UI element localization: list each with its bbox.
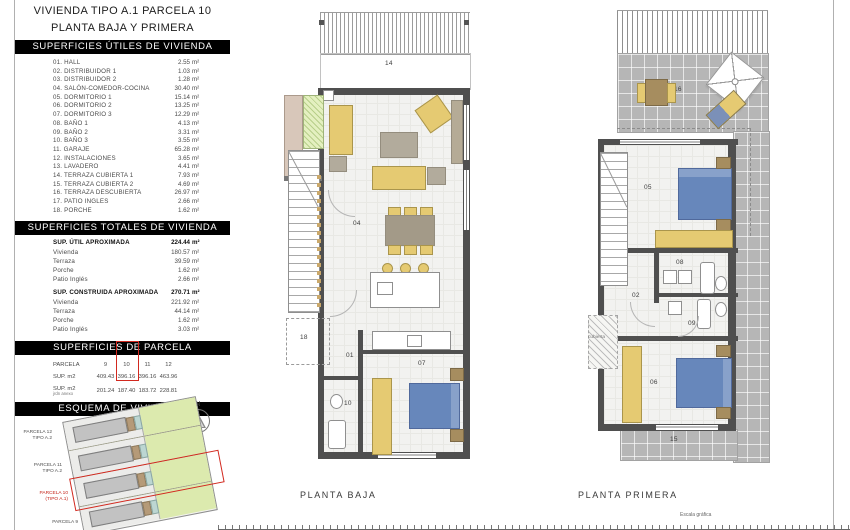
sofa-three-seat	[372, 166, 426, 190]
parcela-row-header: PARCELA	[53, 362, 95, 368]
terraza-cubierta2	[620, 429, 738, 461]
room-area-value: 15.14	[162, 94, 190, 101]
covered-area-dash-v	[750, 128, 751, 236]
stair-baja	[288, 150, 320, 313]
room-label-distribuidor1: 02	[632, 292, 640, 299]
room-name: 17. PATIO INGLES	[53, 198, 162, 205]
site-label-parcela-10: PARCELA 10 (TIPO A.1)	[34, 491, 68, 503]
dining-chair-5	[404, 245, 417, 255]
room-name: 11. GARAJE	[53, 146, 162, 153]
totals-item-unit: m²	[190, 276, 204, 283]
pergola-post-left	[319, 20, 324, 25]
room-label-terraza-cubierta1: 14	[385, 60, 393, 67]
totals-item-row: Terraza39.59m²	[15, 258, 230, 267]
room-name: 10. BAÑO 3	[53, 137, 162, 144]
parcela-jardin-label: SUP. m2 jrdn anexo	[53, 386, 95, 397]
site-label-parcela-9: PARCELA 9	[44, 520, 78, 526]
room-area-unit: m²	[190, 155, 204, 162]
dining-table	[385, 215, 435, 246]
room-area-value: 1.28	[162, 76, 190, 83]
room-area-value: 2.66	[162, 198, 190, 205]
room-area-row: 10. BAÑO 33.55m²	[15, 137, 230, 146]
totals-item-value: 44.14	[162, 308, 190, 315]
sink-bano1-a	[663, 270, 677, 284]
dining-chair-6	[420, 245, 433, 255]
room-area-row: 12. INSTALACIONES3.65m²	[15, 155, 230, 164]
room-name: 13. LAVADERO	[53, 163, 162, 170]
room-area-unit: m²	[190, 111, 204, 118]
totals-item-label: Patio Inglés	[53, 276, 162, 283]
parcela-col-11: 11	[137, 362, 158, 368]
sink-bano1-b	[678, 270, 692, 284]
bathtub-bano1	[700, 262, 715, 294]
totals-list: SUP. ÚTIL APROXIMADA224.44m²Vivienda180.…	[15, 239, 230, 335]
nightstand-primera-3	[716, 345, 731, 357]
room-name: 04. SALÓN-COMEDOR-COCINA	[53, 85, 162, 92]
parcela-jardin-9: 201.24	[95, 388, 116, 394]
site-label-parcela-11-l2: TIPO A.2	[43, 469, 62, 474]
room-area-row: 13. LAVADERO4.41m²	[15, 163, 230, 172]
site-label-parcela-9-l1: PARCELA 9	[52, 520, 78, 525]
room-area-value: 4.69	[162, 181, 190, 188]
room-area-value: 13.25	[162, 102, 190, 109]
totals-item-label: Patio Inglés	[53, 326, 162, 333]
totals-item-label: Terraza	[53, 308, 162, 315]
site-label-parcela-12-l1: PARCELA 12	[24, 430, 52, 435]
room-area-row: 15. TERRAZA CUBIERTA 24.69m²	[15, 181, 230, 190]
room-area-unit: m²	[190, 59, 204, 66]
totals-item-value: 1.62	[162, 267, 190, 274]
caption-planta-baja: PLANTA BAJA	[300, 490, 376, 500]
totals-item-unit: m²	[190, 258, 204, 265]
room-area-row: 14. TERRAZA CUBIERTA 17.93m²	[15, 172, 230, 181]
column-detail-baja	[323, 90, 334, 101]
room-label-hall: 01	[346, 352, 354, 359]
wall-baja-interior-h	[360, 350, 468, 354]
bed-dormitorio3	[409, 383, 460, 429]
parcela-10-highlight-box	[116, 341, 139, 381]
parcela-jardin-10: 187.40	[116, 388, 137, 394]
room-area-value: 3.65	[162, 155, 190, 162]
totals-header-value: 270.71	[162, 289, 190, 296]
nightstand-baja-1	[450, 368, 464, 381]
totals-item-row: Terraza44.14m²	[15, 308, 230, 317]
room-area-unit: m²	[190, 172, 204, 179]
room-area-value: 30.40	[162, 85, 190, 92]
pergola-hatch-primera	[617, 10, 768, 55]
parcela-col-12: 12	[158, 362, 179, 368]
pergola-post-right	[464, 20, 469, 25]
totals-item-row: Porche1.62m²	[15, 267, 230, 276]
totals-item-unit: m²	[190, 299, 204, 306]
room-area-row: 17. PATIO INGLES2.66m²	[15, 198, 230, 207]
rooms-list: 01. HALL2.55m²02. DISTRIBUIDOR 11.03m²03…	[15, 59, 230, 215]
room-area-row: 08. BAÑO 14.13m²	[15, 120, 230, 129]
room-name: 07. DORMITORIO 3	[53, 111, 162, 118]
room-area-row: 04. SALÓN-COMEDOR-COCINA30.40m²	[15, 85, 230, 94]
nightstand-primera-1	[716, 157, 731, 169]
cooktop	[407, 335, 422, 347]
bathtub-baja	[328, 420, 346, 449]
totals-header-unit: m²	[190, 239, 204, 246]
parcela-sup-9: 409.43	[95, 374, 116, 380]
totals-item-row: Vivienda180.57m²	[15, 249, 230, 258]
room-area-value: 3.55	[162, 137, 190, 144]
room-area-row: 02. DISTRIBUIDOR 11.03m²	[15, 68, 230, 77]
totals-item-value: 1.62	[162, 317, 190, 324]
room-area-unit: m²	[190, 76, 204, 83]
stair-baja-edge	[317, 175, 321, 311]
terraza-cubierta1-outline	[320, 53, 471, 90]
totals-item-unit: m²	[190, 308, 204, 315]
room-name: 02. DISTRIBUIDOR 1	[53, 68, 162, 75]
totals-header-row: SUP. ÚTIL APROXIMADA224.44m²	[15, 239, 230, 249]
room-label-terraza-cubierta2: 15	[670, 436, 678, 443]
room-area-row: 01. HALL2.55m²	[15, 59, 230, 68]
parcela-jardin-11: 183.72	[137, 388, 158, 394]
window-primera-bottom	[656, 425, 718, 430]
totals-header-unit: m²	[190, 289, 204, 296]
totals-item-row: Patio Inglés2.66m²	[15, 276, 230, 285]
room-name: 03. DISTRIBUIDOR 2	[53, 76, 162, 83]
room-area-value: 4.13	[162, 120, 190, 127]
totals-item-value: 180.57	[162, 249, 190, 256]
room-name: 15. TERRAZA CUBIERTA 2	[53, 181, 162, 188]
site-label-parcela-12-l2: TIPO A.2	[33, 436, 52, 441]
terrace-table	[645, 79, 668, 106]
room-area-row: 11. GARAJE65.28m²	[15, 146, 230, 155]
room-label-bano3: 10	[344, 400, 352, 407]
room-label-bano1: 08	[676, 259, 684, 266]
room-area-value: 1.03	[162, 68, 190, 75]
sink-bano2	[668, 301, 682, 315]
window-baja-right-1	[464, 105, 469, 160]
room-area-unit: m²	[190, 146, 204, 153]
bathtub-bano2	[697, 299, 711, 329]
room-label-salon: 04	[353, 220, 361, 227]
room-area-unit: m²	[190, 68, 204, 75]
room-area-row: 07. DORMITORIO 312.29m²	[15, 111, 230, 120]
totals-item-label: Porche	[53, 267, 162, 274]
section-header-superficies-totales: SUPERFICIES TOTALES DE VIVIENDA	[15, 221, 230, 235]
site-label-parcela-10-l1: PARCELA 10	[40, 491, 68, 496]
graphic-scale-bar	[218, 525, 850, 530]
site-label-parcela-10-l2: (TIPO A.1)	[45, 497, 68, 502]
room-name: 12. INSTALACIONES	[53, 155, 162, 162]
toilet-bano2	[715, 302, 727, 317]
totals-item-value: 39.59	[162, 258, 190, 265]
room-area-value: 7.93	[162, 172, 190, 179]
room-area-unit: m²	[190, 198, 204, 205]
toilet-baja	[330, 394, 343, 409]
totals-header-label: SUP. ÚTIL APROXIMADA	[53, 239, 162, 246]
totals-item-row: Patio Inglés3.03m²	[15, 326, 230, 335]
nightstand-baja-2	[450, 429, 464, 442]
wardrobe-baja	[372, 378, 392, 455]
totals-item-label: Vivienda	[53, 249, 162, 256]
bed-dormitorio1	[678, 168, 732, 220]
totals-item-value: 221.92	[162, 299, 190, 306]
room-label-dormitorio1: 05	[644, 184, 652, 191]
totals-item-row: Vivienda221.92m²	[15, 299, 230, 308]
coffee-table	[380, 132, 418, 158]
terraza-right-band	[733, 131, 770, 463]
room-label-dormitorio2: 06	[650, 379, 658, 386]
room-name: 08. BAÑO 1	[53, 120, 162, 127]
room-name: 01. HALL	[53, 59, 162, 66]
room-area-value: 1.62	[162, 207, 190, 214]
room-name: 16. TERRAZA DESCUBIERTA	[53, 189, 162, 196]
wardrobe-dormitorio1	[655, 230, 733, 248]
wardrobe-dormitorio2	[622, 346, 642, 423]
drawing-sheet: VIVIENDA TIPO A.1 PARCELA 10 PLANTA BAJA…	[0, 0, 850, 530]
room-area-row: 03. DISTRIBUIDOR 21.28m²	[15, 76, 230, 85]
room-area-unit: m²	[190, 181, 204, 188]
annex-strip-lavadero	[303, 95, 324, 149]
room-name: 18. PORCHE	[53, 207, 162, 214]
totals-header-label: SUP. CONSTRUIDA APROXIMADA	[53, 289, 162, 296]
nightstand-primera-4	[716, 407, 731, 419]
totals-header-row: SUP. CONSTRUIDA APROXIMADA270.71m²	[15, 289, 230, 299]
totals-item-row: Porche1.62m²	[15, 317, 230, 326]
room-area-value: 2.55	[162, 59, 190, 66]
room-area-value: 65.28	[162, 146, 190, 153]
covered-area-dash-h	[617, 128, 750, 129]
parcela-sup-12: 463.96	[158, 374, 179, 380]
wall-baja-bath-divider	[322, 376, 360, 380]
totals-item-unit: m²	[190, 267, 204, 274]
cubierta-label: cubierta	[588, 335, 605, 340]
bed-dormitorio2	[676, 358, 732, 408]
window-primera-top	[620, 140, 700, 144]
site-label-parcela-11: PARCELA 11 TIPO A.2	[28, 463, 62, 475]
room-label-dormitorio3: 07	[418, 360, 426, 367]
side-table-right	[427, 167, 446, 185]
room-area-row: 16. TERRAZA DESCUBIERTA26.97m²	[15, 189, 230, 198]
room-name: 05. DORMITORIO 1	[53, 94, 162, 101]
totals-item-label: Vivienda	[53, 299, 162, 306]
parcela-sup-label: SUP. m2	[53, 374, 95, 380]
totals-item-value: 2.66	[162, 276, 190, 283]
toilet-bano1	[715, 276, 727, 291]
side-table-left	[329, 156, 347, 172]
tv-unit	[451, 100, 463, 164]
totals-item-label: Porche	[53, 317, 162, 324]
room-area-unit: m²	[190, 207, 204, 214]
room-area-unit: m²	[190, 129, 204, 136]
dining-chair-4	[388, 245, 401, 255]
room-area-unit: m²	[190, 189, 204, 196]
sheet-border-line	[833, 0, 834, 530]
scale-label: Escala gráfica	[680, 512, 711, 518]
room-name: 09. BAÑO 2	[53, 129, 162, 136]
room-area-value: 3.31	[162, 129, 190, 136]
window-baja-right-2	[464, 170, 469, 230]
room-area-unit: m²	[190, 102, 204, 109]
site-label-parcela-11-l1: PARCELA 11	[34, 463, 62, 468]
section-header-superficies-utiles: SUPERFICIES ÚTILES DE VIVIENDA	[15, 40, 230, 54]
room-area-unit: m²	[190, 137, 204, 144]
pergola-hatch-baja	[320, 12, 470, 55]
kitchen-sink	[377, 282, 393, 295]
parcela-jardin-label-sub: jrdn anexo	[53, 392, 95, 397]
room-label-porche: 18	[300, 334, 308, 341]
sheet-title-line1: VIVIENDA TIPO A.1 PARCELA 10	[15, 5, 230, 17]
porche-outline	[286, 318, 330, 365]
wall-primera-interior-3	[658, 293, 738, 297]
room-name: 06. DORMITORIO 2	[53, 102, 162, 109]
parcela-jardin-12: 228.81	[158, 388, 179, 394]
room-area-row: 06. DORMITORIO 213.25m²	[15, 102, 230, 111]
room-area-value: 26.97	[162, 189, 190, 196]
room-area-value: 12.29	[162, 111, 190, 118]
room-area-row: 05. DORMITORIO 115.14m²	[15, 94, 230, 103]
parcela-sup-11: 396.16	[137, 374, 158, 380]
room-area-unit: m²	[190, 163, 204, 170]
caption-planta-primera: PLANTA PRIMERA	[578, 490, 678, 500]
room-area-value: 4.41	[162, 163, 190, 170]
parcela-jardin-row: SUP. m2 jrdn anexo 201.24 187.40 183.72 …	[15, 383, 230, 398]
room-area-row: 09. BAÑO 23.31m²	[15, 129, 230, 138]
stair-primera	[600, 152, 628, 286]
totals-item-value: 3.03	[162, 326, 190, 333]
room-area-unit: m²	[190, 94, 204, 101]
room-area-row: 18. PORCHE1.62m²	[15, 207, 230, 216]
totals-item-unit: m²	[190, 326, 204, 333]
wall-baja-top	[318, 88, 470, 95]
cubierta-hatch	[588, 315, 618, 369]
room-name: 14. TERRAZA CUBIERTA 1	[53, 172, 162, 179]
totals-item-label: Terraza	[53, 258, 162, 265]
totals-item-unit: m²	[190, 317, 204, 324]
site-roof-12	[72, 417, 128, 443]
sheet-title-line2: PLANTA BAJA Y PRIMERA	[15, 22, 230, 34]
site-label-parcela-12: PARCELA 12 TIPO A.2	[18, 430, 52, 442]
totals-item-unit: m²	[190, 249, 204, 256]
parcela-col-9: 9	[95, 362, 116, 368]
terrace-chair-2	[667, 83, 676, 103]
totals-header-value: 224.44	[162, 239, 190, 246]
sofa-two-seat	[329, 105, 353, 155]
room-area-unit: m²	[190, 85, 204, 92]
wall-primera-interior-4	[598, 336, 738, 341]
room-area-unit: m²	[190, 120, 204, 127]
